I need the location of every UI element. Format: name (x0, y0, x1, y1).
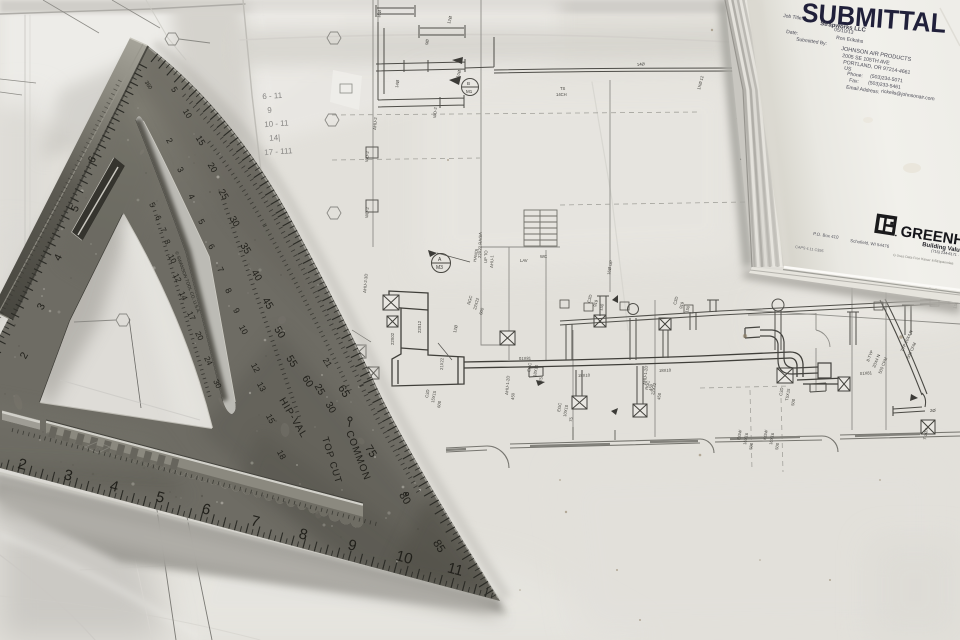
svg-text:B: B (467, 81, 470, 86)
svg-text:UP TO: UP TO (483, 250, 488, 263)
svg-text:21X22: 21X22 (439, 357, 444, 370)
svg-text:450: 450 (648, 383, 654, 391)
svg-text:01X81: 01X81 (519, 356, 532, 361)
svg-text:22X12: 22X12 (417, 320, 422, 333)
svg-text:450: 450 (510, 392, 516, 400)
svg-text:WC: WC (540, 254, 547, 259)
svg-text:TS: TS (560, 86, 566, 91)
svg-text:WD-2: WD-2 (432, 106, 438, 118)
svg-text:22X02: 22X02 (390, 332, 395, 345)
svg-text:WD-2: WD-2 (364, 206, 370, 218)
svg-text:M1: M1 (466, 89, 473, 94)
svg-text:6 - 11: 6 - 11 (262, 91, 283, 101)
svg-text:18X10: 18X10 (578, 373, 591, 378)
svg-text:M3: M3 (436, 265, 443, 271)
svg-text:18X10: 18X10 (659, 368, 672, 373)
svg-text:14Ø: 14Ø (637, 61, 646, 67)
svg-text:14CH: 14CH (556, 92, 567, 97)
svg-text:2Ø: 2Ø (930, 408, 936, 413)
svg-text:01X81: 01X81 (860, 370, 873, 376)
svg-text:WD-2: WD-2 (364, 150, 370, 162)
svg-text:10 - 11: 10 - 11 (264, 118, 289, 129)
svg-text:AHU-1: AHU-1 (489, 255, 494, 268)
svg-text:14|: 14| (269, 133, 281, 143)
svg-text:LAV: LAV (520, 258, 528, 263)
